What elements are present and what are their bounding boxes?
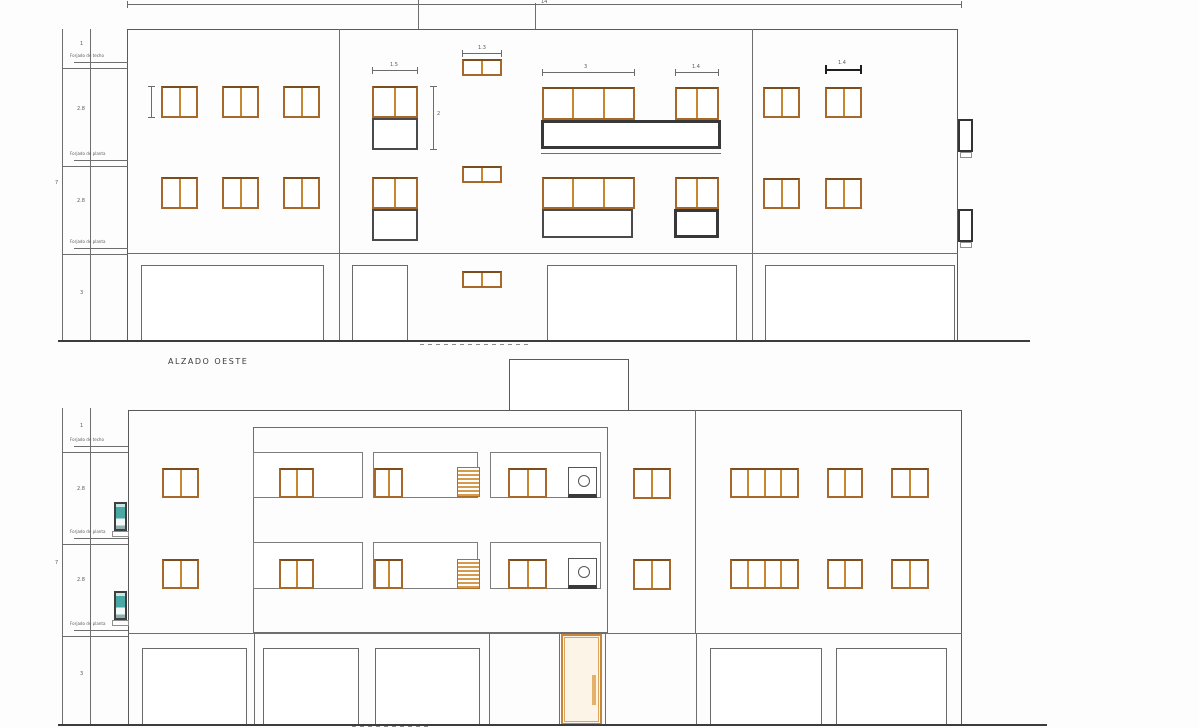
window-2pane xyxy=(825,178,862,209)
side-window-teal xyxy=(114,591,127,620)
dimension-label-top: 14 xyxy=(541,0,547,5)
slab-label: Forjado de techo xyxy=(70,54,104,59)
boiler-vent-box xyxy=(568,467,597,498)
wall-line xyxy=(696,633,697,725)
louver-shutter xyxy=(457,559,480,589)
floor-slab-line xyxy=(128,253,958,254)
window-2pane xyxy=(283,86,320,118)
slab-tick xyxy=(62,544,128,545)
balcony-railing xyxy=(541,120,721,149)
garage-opening xyxy=(141,265,324,341)
slab-label: Forjado de planta xyxy=(70,240,105,245)
window-2pane xyxy=(675,177,719,209)
slab-tick xyxy=(74,248,128,249)
hidden-line xyxy=(420,344,530,345)
height-value: 3 xyxy=(80,290,83,296)
window-2pane xyxy=(763,87,800,118)
slab-label: Forjado de planta xyxy=(70,530,105,535)
window-height-dim xyxy=(433,86,434,150)
slab-label: Forjado de planta xyxy=(70,622,105,627)
boiler-vent-box xyxy=(568,558,597,589)
window-2pane xyxy=(675,87,719,120)
stair-bulkhead xyxy=(509,359,629,411)
window-height-dim xyxy=(151,86,152,118)
height-value: 2.8 xyxy=(77,577,85,583)
dim-label: 1.4 xyxy=(838,60,846,66)
wall-line xyxy=(489,633,490,725)
window-2pane xyxy=(283,177,320,209)
window-2pane xyxy=(372,177,418,209)
dimension-line-left xyxy=(62,29,63,341)
slab-tick xyxy=(74,62,128,63)
wall-line xyxy=(254,633,255,725)
slab-tick xyxy=(62,254,128,255)
window-2pane xyxy=(633,559,671,590)
window-width-dim xyxy=(825,69,862,71)
ground-line xyxy=(58,724,1047,726)
window-2pane xyxy=(763,178,800,209)
stair-window xyxy=(462,166,502,183)
stair-window xyxy=(462,59,502,76)
window-3pane xyxy=(542,87,635,120)
window-2pane xyxy=(222,177,259,209)
entrance-door xyxy=(561,634,602,725)
height-value: 2.8 xyxy=(77,486,85,492)
height-value: 1 xyxy=(80,41,83,47)
shutter-panel xyxy=(372,118,418,150)
window-4pane xyxy=(730,559,799,589)
window-width-dim xyxy=(462,53,502,54)
door-handle xyxy=(592,675,596,705)
balcony-panel xyxy=(542,209,633,238)
height-value: 2.8 xyxy=(77,106,85,112)
window-2pane xyxy=(162,468,199,498)
dim-label: 1.3 xyxy=(478,45,486,51)
door-opening xyxy=(352,265,408,341)
window-2pane xyxy=(891,559,929,589)
hidden-line xyxy=(352,726,430,727)
window-3pane xyxy=(542,177,635,209)
window-2pane xyxy=(222,86,259,118)
window-width-dim xyxy=(542,72,635,73)
slab-tick xyxy=(74,160,128,161)
height-value: 2.8 xyxy=(77,198,85,204)
facade-divider xyxy=(695,410,696,633)
stair-window xyxy=(462,271,502,288)
garage-opening xyxy=(765,265,955,341)
window-2pane xyxy=(508,468,547,498)
slab-tick xyxy=(62,452,128,453)
blueprint-canvas: 14 Forjado de techo Forjado de planta Fo… xyxy=(0,0,1199,728)
storefront-opening xyxy=(836,648,947,725)
storefront-opening xyxy=(375,648,480,725)
window-2pane xyxy=(279,468,314,498)
dim-label: 1.5 xyxy=(390,62,398,68)
slab-tick xyxy=(74,630,128,631)
dimension-line-left xyxy=(90,408,91,725)
window-2pane xyxy=(161,86,198,118)
slab-tick xyxy=(74,538,128,539)
window-2pane xyxy=(827,559,863,589)
slab-tick xyxy=(62,166,128,167)
balcony-panel xyxy=(674,209,719,238)
slab-tick xyxy=(62,636,128,637)
wall-line xyxy=(605,633,606,725)
side-window-sill xyxy=(960,242,972,248)
slab-tick xyxy=(62,68,128,69)
window-2pane xyxy=(161,177,198,209)
louver-shutter xyxy=(457,467,480,497)
window-2pane xyxy=(633,468,671,499)
side-window-teal xyxy=(114,502,127,531)
elevation-title: ALZADO OESTE xyxy=(168,357,248,366)
dimension-tick xyxy=(418,0,419,29)
dim-label: 3 xyxy=(584,64,587,70)
side-window-profile xyxy=(958,119,973,152)
overall-height-value: 7 xyxy=(55,180,58,186)
window-2pane xyxy=(825,87,862,118)
facade-divider xyxy=(339,29,340,341)
balcony-slab-line xyxy=(541,153,721,154)
dim-label: 2 xyxy=(437,111,440,117)
storefront-opening xyxy=(710,648,822,725)
window-2pane xyxy=(374,559,403,589)
slab-label: Forjado de techo xyxy=(70,438,104,443)
dimension-line-left xyxy=(90,29,91,341)
window-2pane xyxy=(374,468,403,498)
window-width-dim xyxy=(372,70,418,71)
window-2pane xyxy=(372,86,418,118)
window-2pane xyxy=(279,559,314,589)
dimension-tick xyxy=(535,3,536,29)
garage-opening xyxy=(547,265,737,341)
shutter-panel xyxy=(372,209,418,241)
window-2pane xyxy=(891,468,929,498)
slab-tick xyxy=(74,446,128,447)
storefront-opening xyxy=(263,648,359,725)
wall-line xyxy=(559,633,560,725)
ground-line xyxy=(58,340,1030,342)
overall-height-value: 7 xyxy=(55,560,58,566)
dimension-line-left xyxy=(62,408,63,725)
height-value: 3 xyxy=(80,671,83,677)
facade-divider xyxy=(752,29,753,341)
side-window-sill xyxy=(960,152,972,158)
window-2pane xyxy=(508,559,547,589)
dim-label: 1.4 xyxy=(692,64,700,70)
window-2pane xyxy=(827,468,863,498)
window-4pane xyxy=(730,468,799,498)
storefront-opening xyxy=(142,648,247,725)
height-value: 1 xyxy=(80,423,83,429)
window-2pane xyxy=(162,559,199,589)
window-width-dim xyxy=(675,72,719,73)
side-window-sill xyxy=(112,531,129,537)
slab-label: Forjado de planta xyxy=(70,152,105,157)
side-window-sill xyxy=(112,620,129,626)
side-window-profile xyxy=(958,209,973,242)
